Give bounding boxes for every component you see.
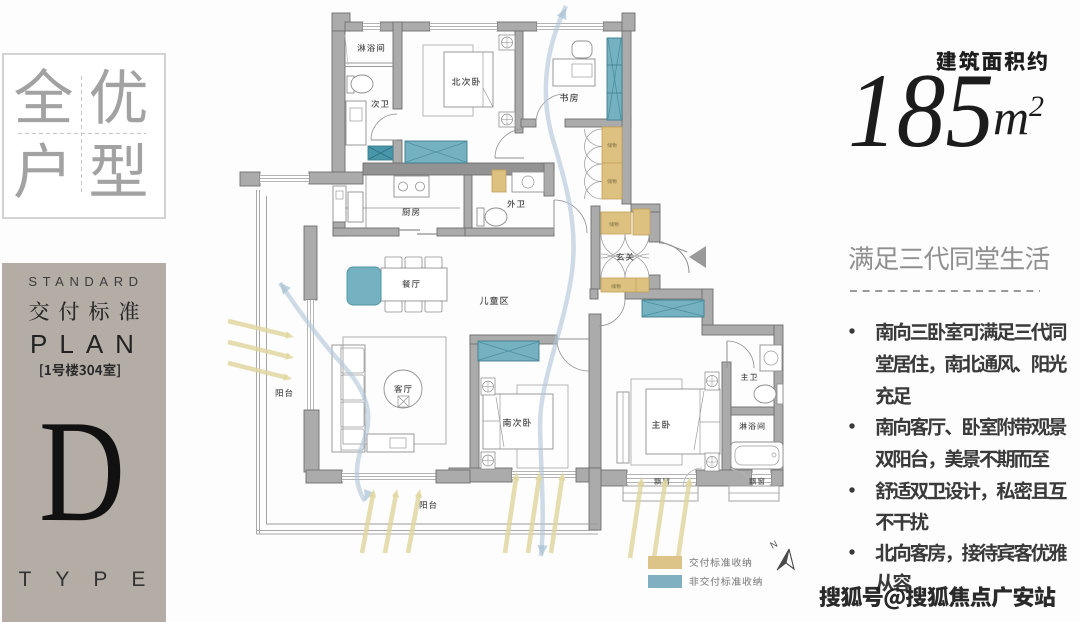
svg-text:TYPE: TYPE <box>19 568 170 591</box>
svg-text:PLAN: PLAN <box>30 329 146 359</box>
svg-text:m: m <box>993 89 1029 145</box>
svg-text:D: D <box>39 390 125 552</box>
svg-text:2: 2 <box>1029 90 1044 123</box>
svg-text:STANDARD: STANDARD <box>28 274 143 289</box>
svg-text:185: 185 <box>848 52 994 169</box>
